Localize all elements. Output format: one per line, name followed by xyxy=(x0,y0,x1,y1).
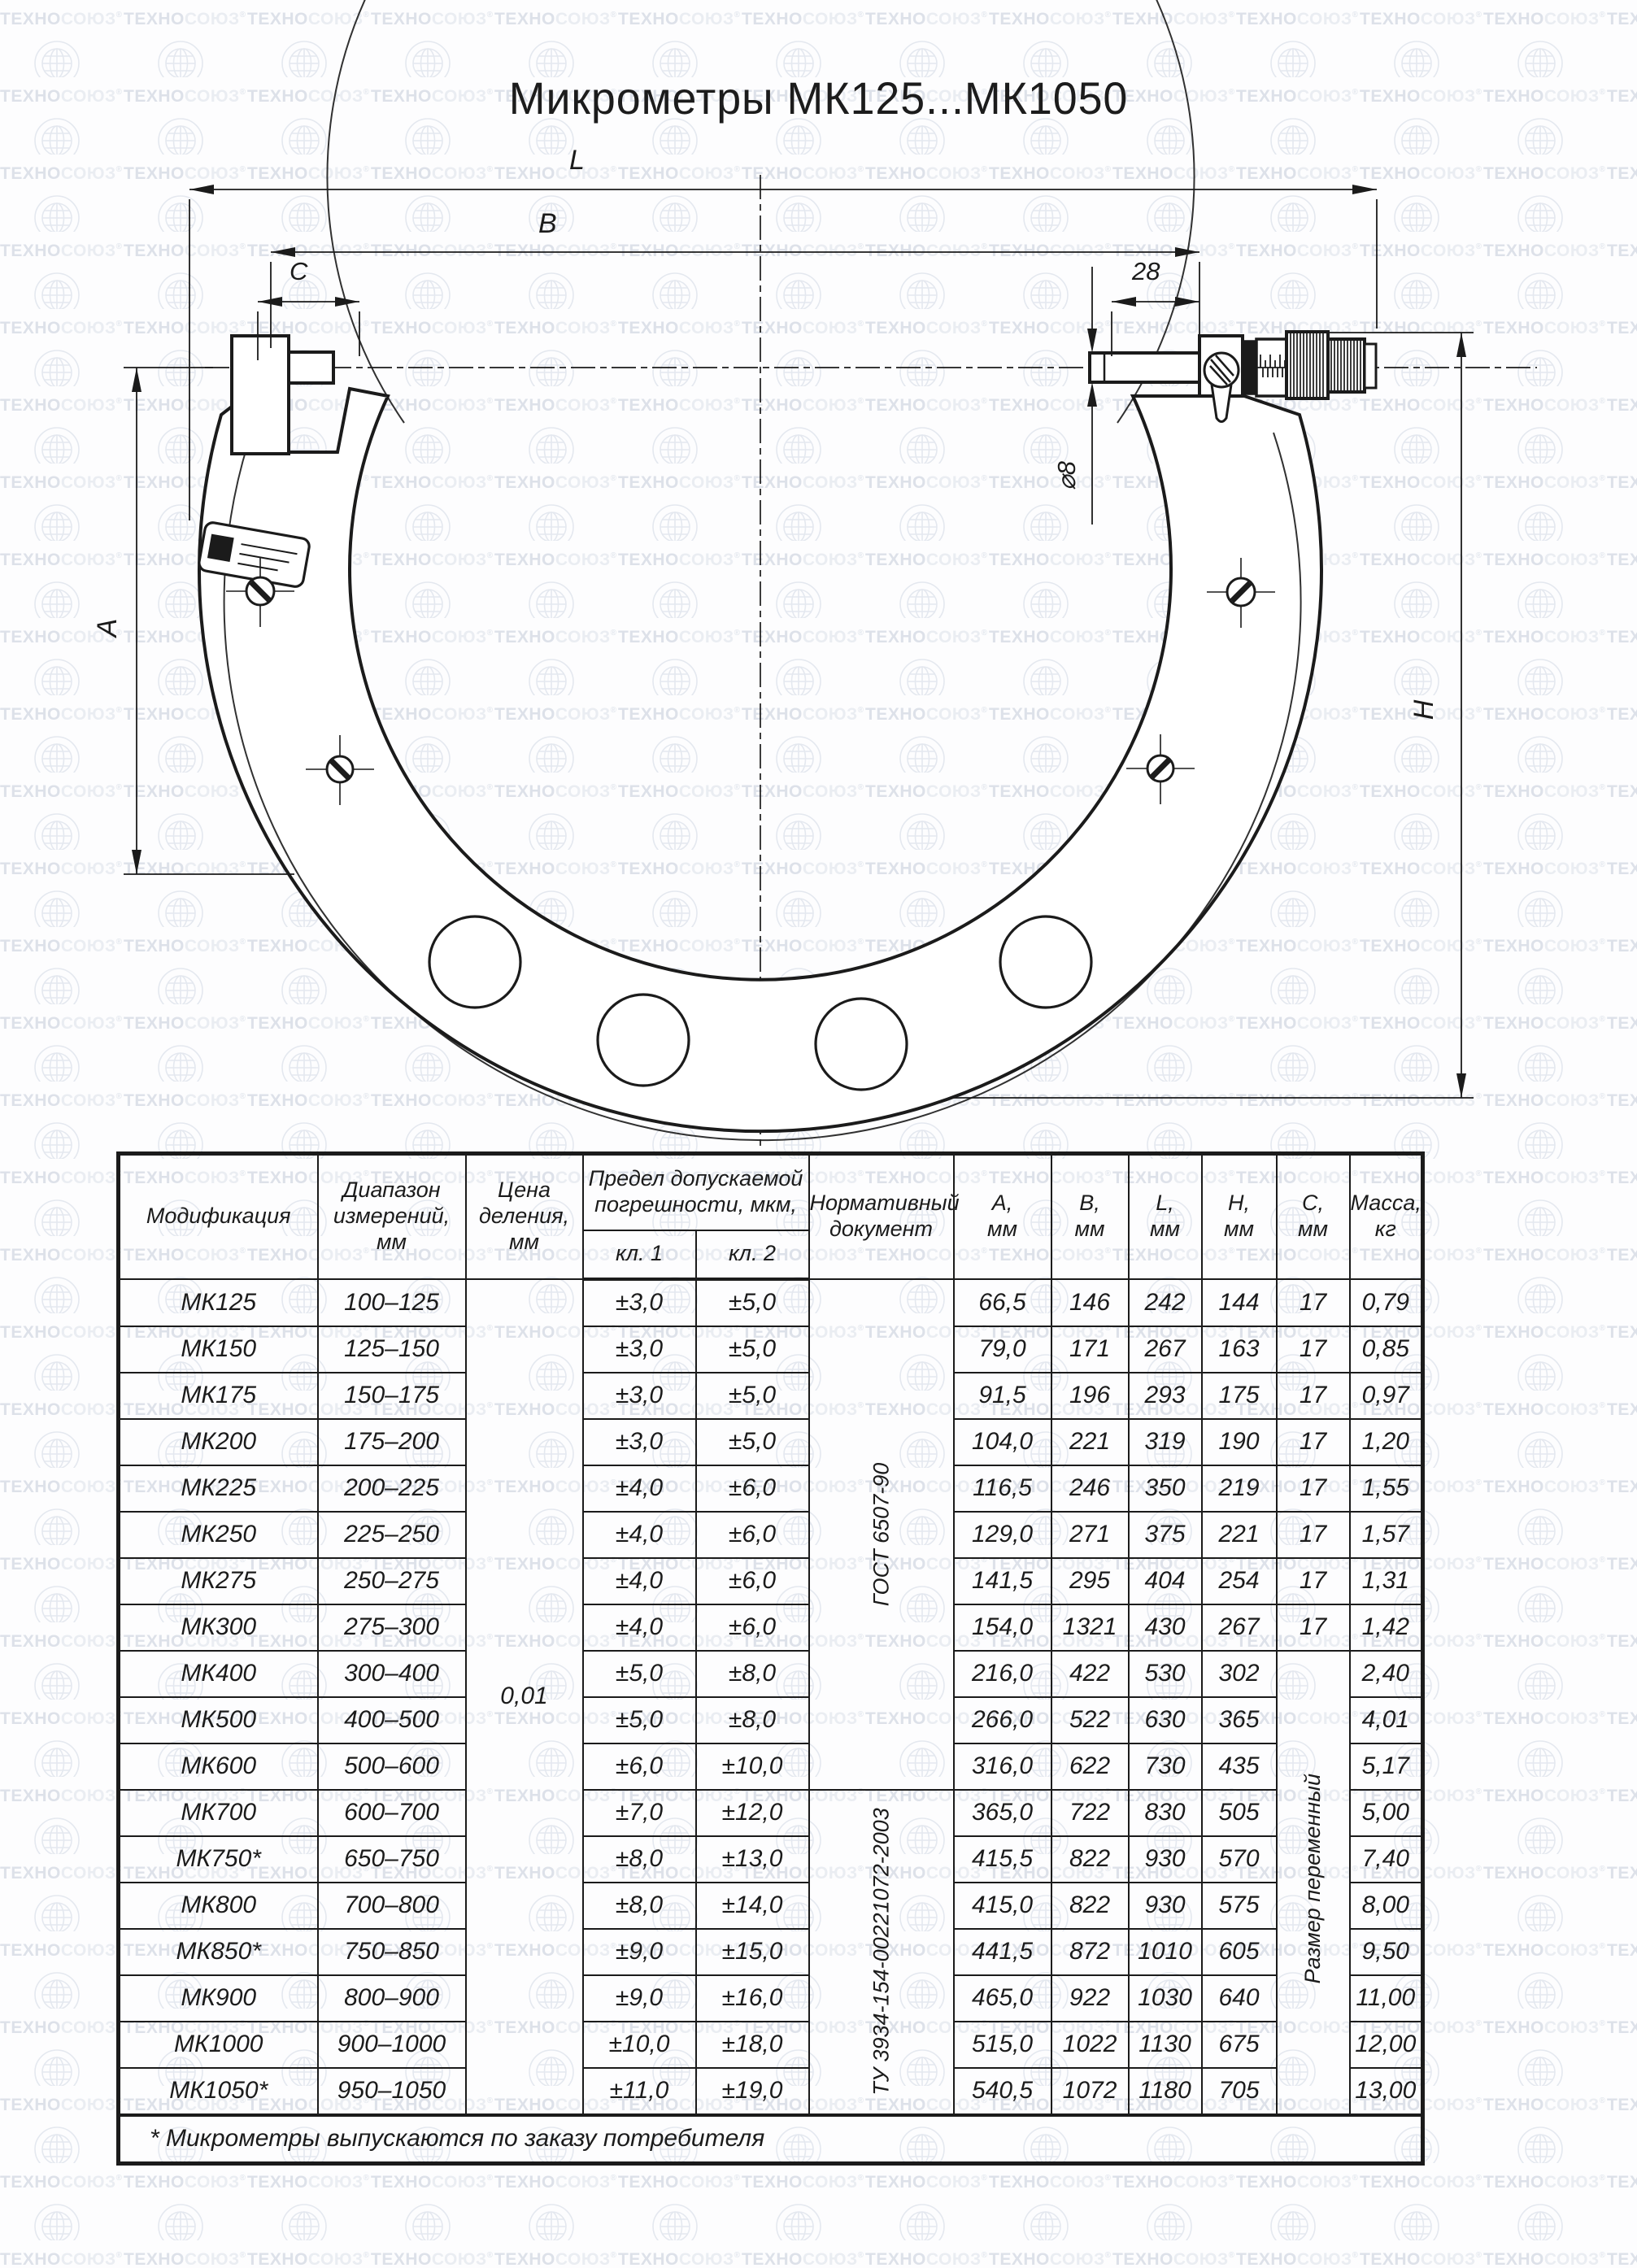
cell-mass: 7,40 xyxy=(1350,1836,1423,1883)
cell-class2: ±19,0 xyxy=(696,2068,809,2115)
cell-mass: 1,55 xyxy=(1350,1465,1423,1512)
cell-h: 640 xyxy=(1202,1975,1277,2022)
cell-l: 730 xyxy=(1129,1743,1202,1790)
cell-modification: МК200 xyxy=(119,1419,318,1465)
cell-class2: ±13,0 xyxy=(696,1836,809,1883)
cell-l: 319 xyxy=(1129,1419,1202,1465)
cell-c: 17 xyxy=(1277,1465,1350,1512)
table-row: МК600500–600±6,0±10,0316,06227304355,17 xyxy=(119,1743,1423,1790)
cell-c: 17 xyxy=(1277,1326,1350,1373)
cell-b: 522 xyxy=(1051,1697,1129,1743)
table-row: МК800700–800±8,0±14,0415,08229305758,00 xyxy=(119,1883,1423,1929)
cell-range: 950–1050 xyxy=(318,2068,466,2115)
cell-l: 350 xyxy=(1129,1465,1202,1512)
cell-h: 435 xyxy=(1202,1743,1277,1790)
cell-h: 570 xyxy=(1202,1836,1277,1883)
cell-class1: ±4,0 xyxy=(583,1558,696,1604)
cell-range: 100–125 xyxy=(318,1279,466,1326)
cell-h: 302 xyxy=(1202,1651,1277,1697)
cell-b: 1072 xyxy=(1051,2068,1129,2115)
cell-b: 822 xyxy=(1051,1836,1129,1883)
cell-l: 404 xyxy=(1129,1558,1202,1604)
cell-modification: МК250 xyxy=(119,1512,318,1558)
sleeve xyxy=(1243,339,1287,396)
cell-class2: ±16,0 xyxy=(696,1975,809,2022)
cell-h: 605 xyxy=(1202,1929,1277,1975)
thimble xyxy=(1287,332,1328,398)
cell-class1: ±4,0 xyxy=(583,1512,696,1558)
table-row: МК175150–175±3,0±5,091,5196293175170,97 xyxy=(119,1373,1423,1419)
table-row: МК750*650–750±8,0±13,0415,58229305707,40 xyxy=(119,1836,1423,1883)
cell-c: 17 xyxy=(1277,1558,1350,1604)
cell-h: 144 xyxy=(1202,1279,1277,1326)
cell-h: 221 xyxy=(1202,1512,1277,1558)
dim-label-H: H xyxy=(1408,699,1439,720)
cell-class1: ±5,0 xyxy=(583,1651,696,1697)
cell-l: 1130 xyxy=(1129,2022,1202,2068)
col-header-a: А, мм xyxy=(954,1154,1051,1279)
cell-l: 1180 xyxy=(1129,2068,1202,2115)
cell-class2: ±6,0 xyxy=(696,1465,809,1512)
table-row: МК1050*950–1050±11,0±19,0540,51072118070… xyxy=(119,2068,1423,2115)
col-header-document: Нормативный документ xyxy=(809,1154,954,1279)
cell-b: 246 xyxy=(1051,1465,1129,1512)
cell-modification: МК400 xyxy=(119,1651,318,1697)
cell-modification: МК1000 xyxy=(119,2022,318,2068)
cell-range: 700–800 xyxy=(318,1883,466,1929)
cell-l: 375 xyxy=(1129,1512,1202,1558)
cell-mass: 11,00 xyxy=(1350,1975,1423,2022)
table-row: МК300275–300±4,0±6,0154,01321430267171,4… xyxy=(119,1604,1423,1651)
cell-a: 365,0 xyxy=(954,1790,1051,1836)
cell-a: 116,5 xyxy=(954,1465,1051,1512)
cell-l: 930 xyxy=(1129,1883,1202,1929)
dim-label-C: C xyxy=(290,257,308,285)
col-header-b: В, мм xyxy=(1051,1154,1129,1279)
cell-modification: МК850* xyxy=(119,1929,318,1975)
cell-mass: 8,00 xyxy=(1350,1883,1423,1929)
cell-document-tu-label: ТУ 3934-154-00221072-2003 xyxy=(870,1808,892,2096)
table-row: МК125100–1250,01±3,0±5,0ГОСТ 6507-9066,5… xyxy=(119,1279,1423,1326)
table-row: МК150125–150±3,0±5,079,0171267163170,85 xyxy=(119,1326,1423,1373)
cell-l: 267 xyxy=(1129,1326,1202,1373)
cell-b: 722 xyxy=(1051,1790,1129,1836)
cell-a: 104,0 xyxy=(954,1419,1051,1465)
cell-class2: ±6,0 xyxy=(696,1512,809,1558)
cell-modification: МК700 xyxy=(119,1790,318,1836)
cell-c-note: Размер переменный xyxy=(1277,1651,1350,2115)
page-title: Микрометры МК125...МК1050 xyxy=(33,72,1604,124)
cell-mass: 4,01 xyxy=(1350,1697,1423,1743)
cell-modification: МК1050* xyxy=(119,2068,318,2115)
col-header-l: L, мм xyxy=(1129,1154,1202,1279)
cell-b: 1022 xyxy=(1051,2022,1129,2068)
cell-mass: 2,40 xyxy=(1350,1651,1423,1697)
cell-b: 221 xyxy=(1051,1419,1129,1465)
cell-modification: МК500 xyxy=(119,1697,318,1743)
cell-range: 650–750 xyxy=(318,1836,466,1883)
cell-class2: ±5,0 xyxy=(696,1419,809,1465)
table-row: МК400300–400±5,0±8,0216,0422530302Размер… xyxy=(119,1651,1423,1697)
cell-a: 141,5 xyxy=(954,1558,1051,1604)
cell-c: 17 xyxy=(1277,1419,1350,1465)
spindle xyxy=(1090,353,1199,382)
cell-h: 675 xyxy=(1202,2022,1277,2068)
cell-modification: МК150 xyxy=(119,1326,318,1373)
cell-class1: ±3,0 xyxy=(583,1326,696,1373)
table-row: МК500400–500±5,0±8,0266,05226303654,01 xyxy=(119,1697,1423,1743)
cell-mass: 9,50 xyxy=(1350,1929,1423,1975)
cell-a: 79,0 xyxy=(954,1326,1051,1373)
cell-range: 750–850 xyxy=(318,1929,466,1975)
dim-label-B: B xyxy=(538,208,557,239)
cell-range: 125–150 xyxy=(318,1326,466,1373)
cell-modification: МК750* xyxy=(119,1836,318,1883)
cell-class2: ±5,0 xyxy=(696,1279,809,1326)
dim-label-A: A xyxy=(92,619,123,639)
ratchet xyxy=(1328,339,1376,392)
cell-class2: ±15,0 xyxy=(696,1929,809,1975)
cell-modification: МК275 xyxy=(119,1558,318,1604)
cell-mass: 5,17 xyxy=(1350,1743,1423,1790)
cell-a: 415,0 xyxy=(954,1883,1051,1929)
cell-class1: ±4,0 xyxy=(583,1604,696,1651)
cell-mass: 1,31 xyxy=(1350,1558,1423,1604)
table-row: МК900800–900±9,0±16,0465,0922103064011,0… xyxy=(119,1975,1423,2022)
cell-c: 17 xyxy=(1277,1604,1350,1651)
col-header-mass: Масса, кг xyxy=(1350,1154,1423,1279)
cell-h: 163 xyxy=(1202,1326,1277,1373)
cell-c-note-label: Размер переменный xyxy=(1302,1774,1324,1983)
cell-a: 266,0 xyxy=(954,1697,1051,1743)
col-header-class2: кл. 2 xyxy=(696,1230,809,1279)
col-header-modification: Модификация xyxy=(119,1154,318,1279)
dim-label-L: L xyxy=(569,145,585,176)
table-footnote: * Микрометры выпускаются по заказу потре… xyxy=(119,2115,1423,2164)
cell-range: 225–250 xyxy=(318,1512,466,1558)
micrometer-drawing: L B C 28 ⌀8 A H xyxy=(0,0,1637,1163)
table-row: МК275250–275±4,0±6,0141,5295404254171,31 xyxy=(119,1558,1423,1604)
cell-class1: ±4,0 xyxy=(583,1465,696,1512)
cell-class2: ±8,0 xyxy=(696,1697,809,1743)
table-row: МК250225–250±4,0±6,0129,0271375221171,57 xyxy=(119,1512,1423,1558)
col-header-c: С, мм xyxy=(1277,1154,1350,1279)
cell-mass: 0,85 xyxy=(1350,1326,1423,1373)
col-header-division: Цена деления, мм xyxy=(466,1154,583,1279)
cell-h: 190 xyxy=(1202,1419,1277,1465)
anvil xyxy=(232,336,333,454)
cell-class2: ±5,0 xyxy=(696,1326,809,1373)
cell-class2: ±18,0 xyxy=(696,2022,809,2068)
cell-range: 300–400 xyxy=(318,1651,466,1697)
table-footnote-row: * Микрометры выпускаются по заказу потре… xyxy=(119,2115,1423,2164)
cell-h: 267 xyxy=(1202,1604,1277,1651)
dim-label-28: 28 xyxy=(1131,257,1160,285)
table-row: МК850*750–850±9,0±15,0441,587210106059,5… xyxy=(119,1929,1423,1975)
cell-document-gost-label: ГОСТ 6507-90 xyxy=(870,1462,892,1605)
cell-a: 154,0 xyxy=(954,1604,1051,1651)
cell-l: 930 xyxy=(1129,1836,1202,1883)
cell-class1: ±8,0 xyxy=(583,1883,696,1929)
cell-b: 295 xyxy=(1051,1558,1129,1604)
table-row: МК225200–225±4,0±6,0116,5246350219171,55 xyxy=(119,1465,1423,1512)
cell-class2: ±14,0 xyxy=(696,1883,809,1929)
cell-modification: МК225 xyxy=(119,1465,318,1512)
spec-table-wrap: Модификация Диапазон измерений, мм Цена … xyxy=(116,1151,1425,2166)
cell-modification: МК300 xyxy=(119,1604,318,1651)
table-row: МК200175–200±3,0±5,0104,0221319190171,20 xyxy=(119,1419,1423,1465)
cell-l: 430 xyxy=(1129,1604,1202,1651)
cell-range: 150–175 xyxy=(318,1373,466,1419)
cell-class2: ±12,0 xyxy=(696,1790,809,1836)
col-header-tolerance: Предел допускаемой погрешности, мкм, xyxy=(583,1154,809,1230)
cell-b: 822 xyxy=(1051,1883,1129,1929)
cell-modification: МК800 xyxy=(119,1883,318,1929)
cell-b: 1321 xyxy=(1051,1604,1129,1651)
cell-range: 250–275 xyxy=(318,1558,466,1604)
cell-l: 1010 xyxy=(1129,1929,1202,1975)
cell-division-value: 0,01 xyxy=(466,1279,583,2115)
cell-class1: ±3,0 xyxy=(583,1373,696,1419)
cell-h: 254 xyxy=(1202,1558,1277,1604)
cell-b: 622 xyxy=(1051,1743,1129,1790)
cell-range: 275–300 xyxy=(318,1604,466,1651)
cell-b: 872 xyxy=(1051,1929,1129,1975)
cell-range: 200–225 xyxy=(318,1465,466,1512)
cell-range: 600–700 xyxy=(318,1790,466,1836)
cell-a: 66,5 xyxy=(954,1279,1051,1326)
cell-class2: ±6,0 xyxy=(696,1604,809,1651)
cell-h: 175 xyxy=(1202,1373,1277,1419)
cell-document-tu: ТУ 3934-154-00221072-2003 xyxy=(809,1790,954,2115)
cell-a: 515,0 xyxy=(954,2022,1051,2068)
cell-mass: 12,00 xyxy=(1350,2022,1423,2068)
cell-mass: 13,00 xyxy=(1350,2068,1423,2115)
cell-class1: ±7,0 xyxy=(583,1790,696,1836)
cell-class1: ±8,0 xyxy=(583,1836,696,1883)
cell-l: 293 xyxy=(1129,1373,1202,1419)
cell-mass: 0,97 xyxy=(1350,1373,1423,1419)
col-header-range: Диапазон измерений, мм xyxy=(318,1154,466,1279)
cell-h: 219 xyxy=(1202,1465,1277,1512)
cell-range: 175–200 xyxy=(318,1419,466,1465)
cell-modification: МК175 xyxy=(119,1373,318,1419)
cell-h: 505 xyxy=(1202,1790,1277,1836)
cell-class2: ±10,0 xyxy=(696,1743,809,1790)
dim-label-dia8: ⌀8 xyxy=(1052,460,1081,490)
cell-b: 196 xyxy=(1051,1373,1129,1419)
cell-class2: ±6,0 xyxy=(696,1558,809,1604)
cell-class1: ±3,0 xyxy=(583,1279,696,1326)
cell-mass: 1,42 xyxy=(1350,1604,1423,1651)
cell-modification: МК125 xyxy=(119,1279,318,1326)
cell-range: 900–1000 xyxy=(318,2022,466,2068)
cell-class1: ±6,0 xyxy=(583,1743,696,1790)
cell-b: 271 xyxy=(1051,1512,1129,1558)
cell-c: 17 xyxy=(1277,1373,1350,1419)
cell-mass: 5,00 xyxy=(1350,1790,1423,1836)
cell-range: 500–600 xyxy=(318,1743,466,1790)
cell-mass: 1,20 xyxy=(1350,1419,1423,1465)
cell-a: 441,5 xyxy=(954,1929,1051,1975)
cell-l: 830 xyxy=(1129,1790,1202,1836)
cell-b: 922 xyxy=(1051,1975,1129,2022)
cell-a: 465,0 xyxy=(954,1975,1051,2022)
cell-mass: 1,57 xyxy=(1350,1512,1423,1558)
table-row: МК1000900–1000±10,0±18,0515,010221130675… xyxy=(119,2022,1423,2068)
cell-a: 129,0 xyxy=(954,1512,1051,1558)
cell-range: 400–500 xyxy=(318,1697,466,1743)
cell-class1: ±3,0 xyxy=(583,1419,696,1465)
cell-h: 365 xyxy=(1202,1697,1277,1743)
cell-h: 575 xyxy=(1202,1883,1277,1929)
cell-range: 800–900 xyxy=(318,1975,466,2022)
cell-class2: ±5,0 xyxy=(696,1373,809,1419)
cell-mass: 0,79 xyxy=(1350,1279,1423,1326)
cell-l: 242 xyxy=(1129,1279,1202,1326)
cell-l: 1030 xyxy=(1129,1975,1202,2022)
spec-table: Модификация Диапазон измерений, мм Цена … xyxy=(116,1151,1425,2166)
cell-c: 17 xyxy=(1277,1279,1350,1326)
cell-class1: ±9,0 xyxy=(583,1929,696,1975)
cell-l: 630 xyxy=(1129,1697,1202,1743)
col-header-class1: кл. 1 xyxy=(583,1230,696,1279)
cell-b: 171 xyxy=(1051,1326,1129,1373)
cell-modification: МК900 xyxy=(119,1975,318,2022)
cell-class1: ±10,0 xyxy=(583,2022,696,2068)
cell-l: 530 xyxy=(1129,1651,1202,1697)
cell-class2: ±8,0 xyxy=(696,1651,809,1697)
cell-b: 146 xyxy=(1051,1279,1129,1326)
table-row: МК700600–700±7,0±12,0ТУ 3934-154-0022107… xyxy=(119,1790,1423,1836)
cell-a: 216,0 xyxy=(954,1651,1051,1697)
col-header-h: Н, мм xyxy=(1202,1154,1277,1279)
cell-class1: ±11,0 xyxy=(583,2068,696,2115)
cell-document-gost: ГОСТ 6507-90 xyxy=(809,1279,954,1790)
cell-h: 705 xyxy=(1202,2068,1277,2115)
cell-modification: МК600 xyxy=(119,1743,318,1790)
cell-b: 422 xyxy=(1051,1651,1129,1697)
cell-a: 316,0 xyxy=(954,1743,1051,1790)
cell-a: 91,5 xyxy=(954,1373,1051,1419)
cell-a: 540,5 xyxy=(954,2068,1051,2115)
cell-class1: ±5,0 xyxy=(583,1697,696,1743)
cell-class1: ±9,0 xyxy=(583,1975,696,2022)
cell-c: 17 xyxy=(1277,1512,1350,1558)
cell-a: 415,5 xyxy=(954,1836,1051,1883)
